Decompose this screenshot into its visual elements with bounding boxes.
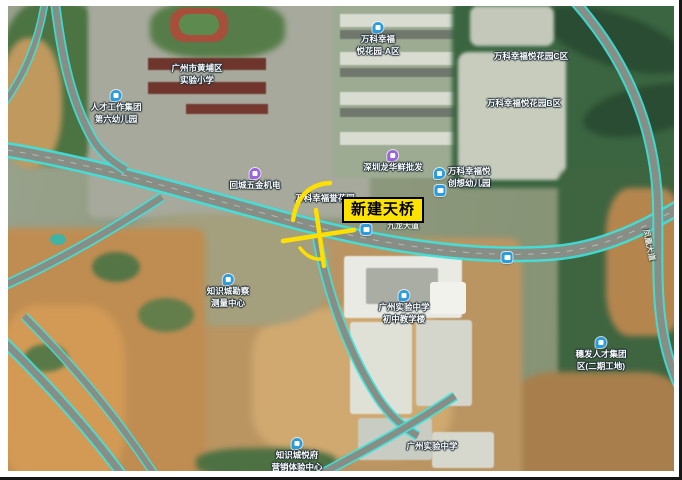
- map-world: 人才工作集团第六幼儿园广州市黄埔区实验小学万科幸福悦花园-A区万科幸福悦花园C区…: [8, 6, 674, 471]
- bridge-sketch: [8, 6, 674, 471]
- screenshot-canvas: 人才工作集团第六幼儿园广州市黄埔区实验小学万科幸福悦花园-A区万科幸福悦花园C区…: [0, 0, 682, 480]
- bridge-annotation-label: 新建天桥: [342, 197, 424, 223]
- sketch-ramp: [300, 248, 322, 259]
- sketch-arc: [293, 183, 330, 220]
- satellite-map[interactable]: 人才工作集团第六幼儿园广州市黄埔区实验小学万科幸福悦花园-A区万科幸福悦花园C区…: [8, 6, 674, 471]
